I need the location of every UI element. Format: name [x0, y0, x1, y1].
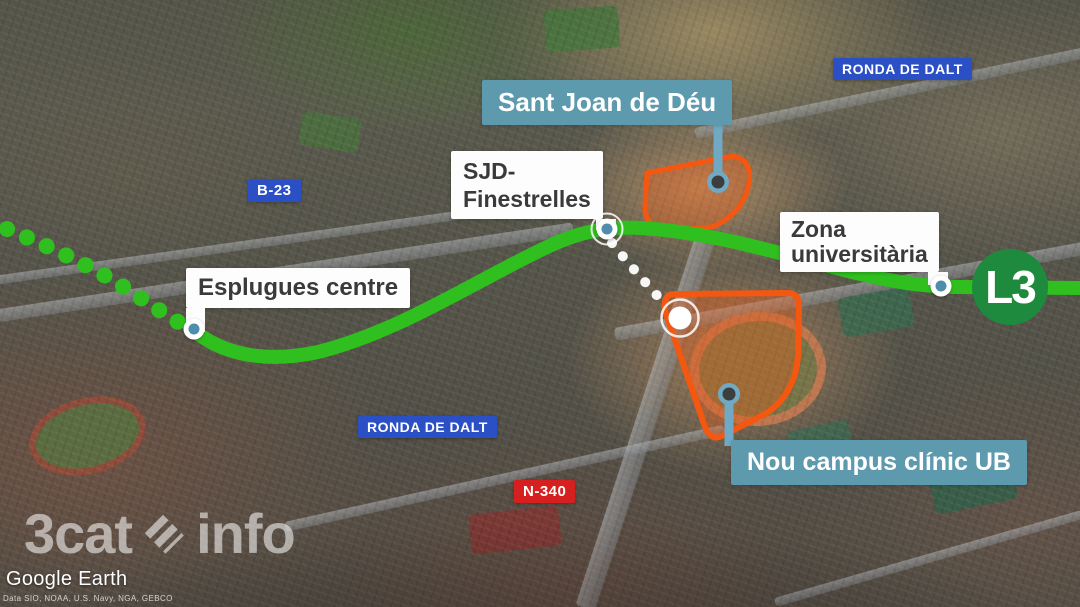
- station-label-line1: Zona: [791, 217, 928, 242]
- google-earth-text: Google Earth: [6, 568, 127, 590]
- area-label-nou-campus-clinic-ub: Nou campus clínic UB: [731, 440, 1027, 485]
- area-label-text: Sant Joan de Déu: [498, 87, 716, 117]
- watermark-text-left: 3cat: [24, 506, 132, 562]
- station-dot: [936, 281, 947, 292]
- station-label-zona-universitaria: Zona universitària: [780, 212, 939, 272]
- station-label-text: Esplugues centre: [198, 274, 398, 301]
- station-label-line2: Finestrelles: [463, 185, 591, 213]
- imagery-credits-text: Data SIO, NOAA, U.S. Navy, NGA, GEBCO: [3, 594, 173, 603]
- station-marker-sjd-finestrelles: [597, 219, 618, 240]
- road-badge-ronda-de-dalt-top: RONDA DE DALT: [833, 58, 972, 80]
- road-badge-text: RONDA DE DALT: [842, 61, 963, 77]
- station-ring: [591, 213, 624, 246]
- google-earth-logo: Google Earth: [6, 568, 127, 591]
- 3cat-diamond-icon: [142, 512, 186, 556]
- station-label-sjd-finestrelles: SJD- Finestrelles: [451, 151, 603, 219]
- imagery-credits: Data SIO, NOAA, U.S. Navy, NGA, GEBCO: [3, 594, 173, 603]
- road-badge-text: N-340: [523, 483, 566, 500]
- station-marker-zona-universitaria: [931, 276, 952, 297]
- metro-line-badge-text: L3: [985, 260, 1035, 314]
- road-badge-text: RONDA DE DALT: [367, 419, 488, 435]
- hospital-area-polygon: [645, 156, 750, 231]
- area-label-text: Nou campus clínic UB: [747, 448, 1011, 476]
- area-label-sant-joan-de-deu: Sant Joan de Déu: [482, 80, 732, 125]
- map-canvas: Esplugues centre SJD- Finestrelles Zona …: [0, 0, 1080, 607]
- road-badge-b23: B-23: [248, 179, 301, 202]
- road-badge-n340: N-340: [514, 480, 575, 503]
- station-label-line1: SJD-: [463, 157, 591, 185]
- hospital-anchor-dot: [712, 176, 725, 189]
- metro-line-badge-l3: L3: [972, 249, 1048, 325]
- station-marker-esplugues-centre: [184, 319, 205, 340]
- campus-link-dotted-path: [612, 243, 662, 301]
- watermark-text-right: info: [196, 506, 295, 562]
- station-label-esplugues-centre: Esplugues centre: [186, 268, 410, 308]
- campus-anchor-dot: [723, 388, 736, 401]
- station-dot: [189, 324, 200, 335]
- metro-line-dotted-section: [7, 229, 187, 327]
- station-label-line2: universitària: [791, 242, 928, 267]
- campus-point-circle: [669, 307, 692, 330]
- road-badge-ronda-de-dalt-bottom: RONDA DE DALT: [358, 416, 497, 438]
- broadcaster-watermark: 3cat info: [24, 506, 295, 562]
- road-badge-text: B-23: [257, 182, 292, 199]
